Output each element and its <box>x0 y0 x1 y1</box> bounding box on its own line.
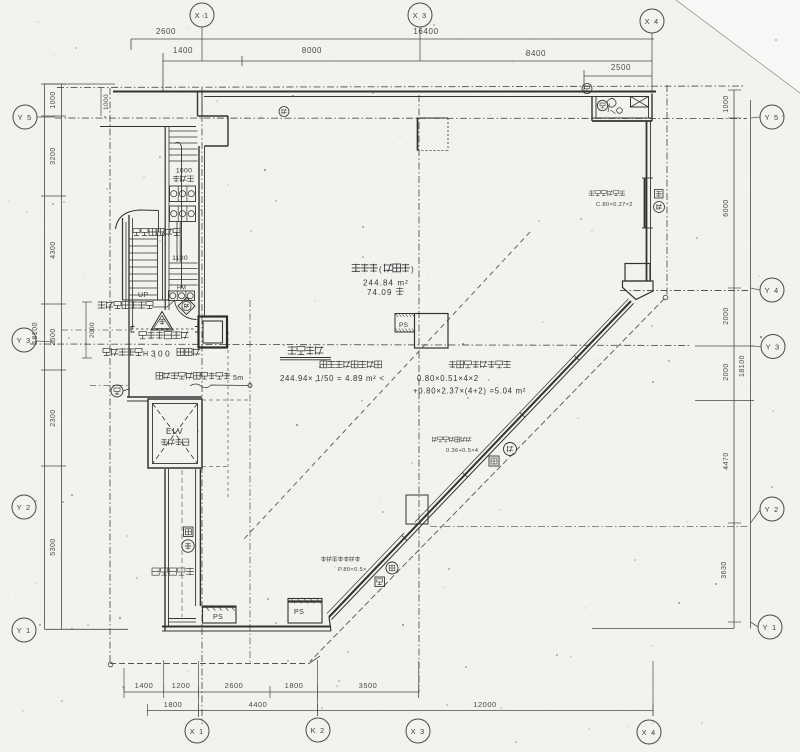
svg-text:8400: 8400 <box>526 49 546 58</box>
svg-text:2300: 2300 <box>50 409 57 427</box>
svg-text:Y 4: Y 4 <box>765 286 780 295</box>
svg-text:1800: 1800 <box>164 700 183 709</box>
svg-text:Y 3: Y 3 <box>17 336 32 345</box>
svg-text:K 2: K 2 <box>311 726 326 735</box>
svg-text:4300: 4300 <box>50 241 57 259</box>
svg-text:1000: 1000 <box>176 168 192 175</box>
svg-text:X 3: X 3 <box>413 11 428 20</box>
svg-text:Y 2: Y 2 <box>17 503 32 512</box>
svg-text:1000: 1000 <box>50 91 57 109</box>
svg-text:Y 5: Y 5 <box>18 113 33 122</box>
svg-text:Y 2: Y 2 <box>765 505 780 514</box>
svg-text:X 3: X 3 <box>411 727 426 736</box>
svg-text:2500: 2500 <box>611 63 631 72</box>
svg-text:2500: 2500 <box>50 328 57 346</box>
svg-text:244.84 m²: 244.84 m² <box>363 279 409 288</box>
svg-text:18100: 18100 <box>32 322 39 344</box>
svg-text:1000: 1000 <box>103 94 110 110</box>
svg-text:2000: 2000 <box>723 363 730 381</box>
svg-text:4400: 4400 <box>249 700 268 709</box>
svg-text:2000: 2000 <box>723 307 730 325</box>
svg-text:PS: PS <box>294 609 304 616</box>
svg-text:2600: 2600 <box>225 681 244 690</box>
svg-text:5300: 5300 <box>50 538 57 556</box>
svg-text:H: H <box>143 351 148 358</box>
svg-text:1200: 1200 <box>172 681 191 690</box>
svg-text:X 4: X 4 <box>645 17 660 26</box>
svg-text:X 4: X 4 <box>642 728 657 737</box>
svg-text:1100: 1100 <box>172 255 188 262</box>
svg-text:18100: 18100 <box>739 355 746 377</box>
svg-text:PS: PS <box>213 614 223 621</box>
svg-text:12000: 12000 <box>473 700 496 709</box>
svg-text:3200: 3200 <box>50 147 57 165</box>
svg-text:1400: 1400 <box>135 681 154 690</box>
svg-text:P.80×0.5×: P.80×0.5× <box>338 567 367 573</box>
svg-text:1800: 1800 <box>285 681 304 690</box>
svg-text:X 1: X 1 <box>190 727 205 736</box>
svg-text:3500: 3500 <box>359 681 378 690</box>
svg-text:Y 5: Y 5 <box>765 113 780 122</box>
svg-text:Y 1: Y 1 <box>763 623 778 632</box>
svg-text:Y 3: Y 3 <box>766 342 781 351</box>
svg-text:3630: 3630 <box>721 561 728 579</box>
svg-text:244.94× 1/50 = 4.89 m² <: 244.94× 1/50 = 4.89 m² < <box>280 374 385 383</box>
svg-text:1400: 1400 <box>173 46 193 55</box>
svg-text:Y 1: Y 1 <box>17 626 32 635</box>
svg-text:16400: 16400 <box>413 27 438 36</box>
svg-text:4470: 4470 <box>723 452 730 470</box>
svg-text:ELV: ELV <box>166 427 184 436</box>
svg-text:X 1: X 1 <box>195 11 210 20</box>
svg-text:6000: 6000 <box>723 199 730 217</box>
svg-text:+0.80×2.37×(4+2) =5.04 m²: +0.80×2.37×(4+2) =5.04 m² <box>413 387 526 396</box>
svg-text:74.09: 74.09 <box>367 288 393 297</box>
svg-text:): ) <box>411 265 414 274</box>
svg-text:0.36+0.5×4: 0.36+0.5×4 <box>446 448 479 454</box>
svg-text:8000: 8000 <box>302 46 322 55</box>
svg-text:0.80×0.51×4×2: 0.80×0.51×4×2 <box>417 374 479 383</box>
svg-text:UP: UP <box>138 292 149 299</box>
svg-text:2600: 2600 <box>156 27 176 36</box>
svg-text:5m: 5m <box>233 375 243 382</box>
svg-text:(: ( <box>379 265 382 274</box>
svg-text:1000: 1000 <box>723 95 730 113</box>
svg-text:PS: PS <box>399 322 409 329</box>
svg-text:C.80×0.27×2: C.80×0.27×2 <box>596 202 633 208</box>
